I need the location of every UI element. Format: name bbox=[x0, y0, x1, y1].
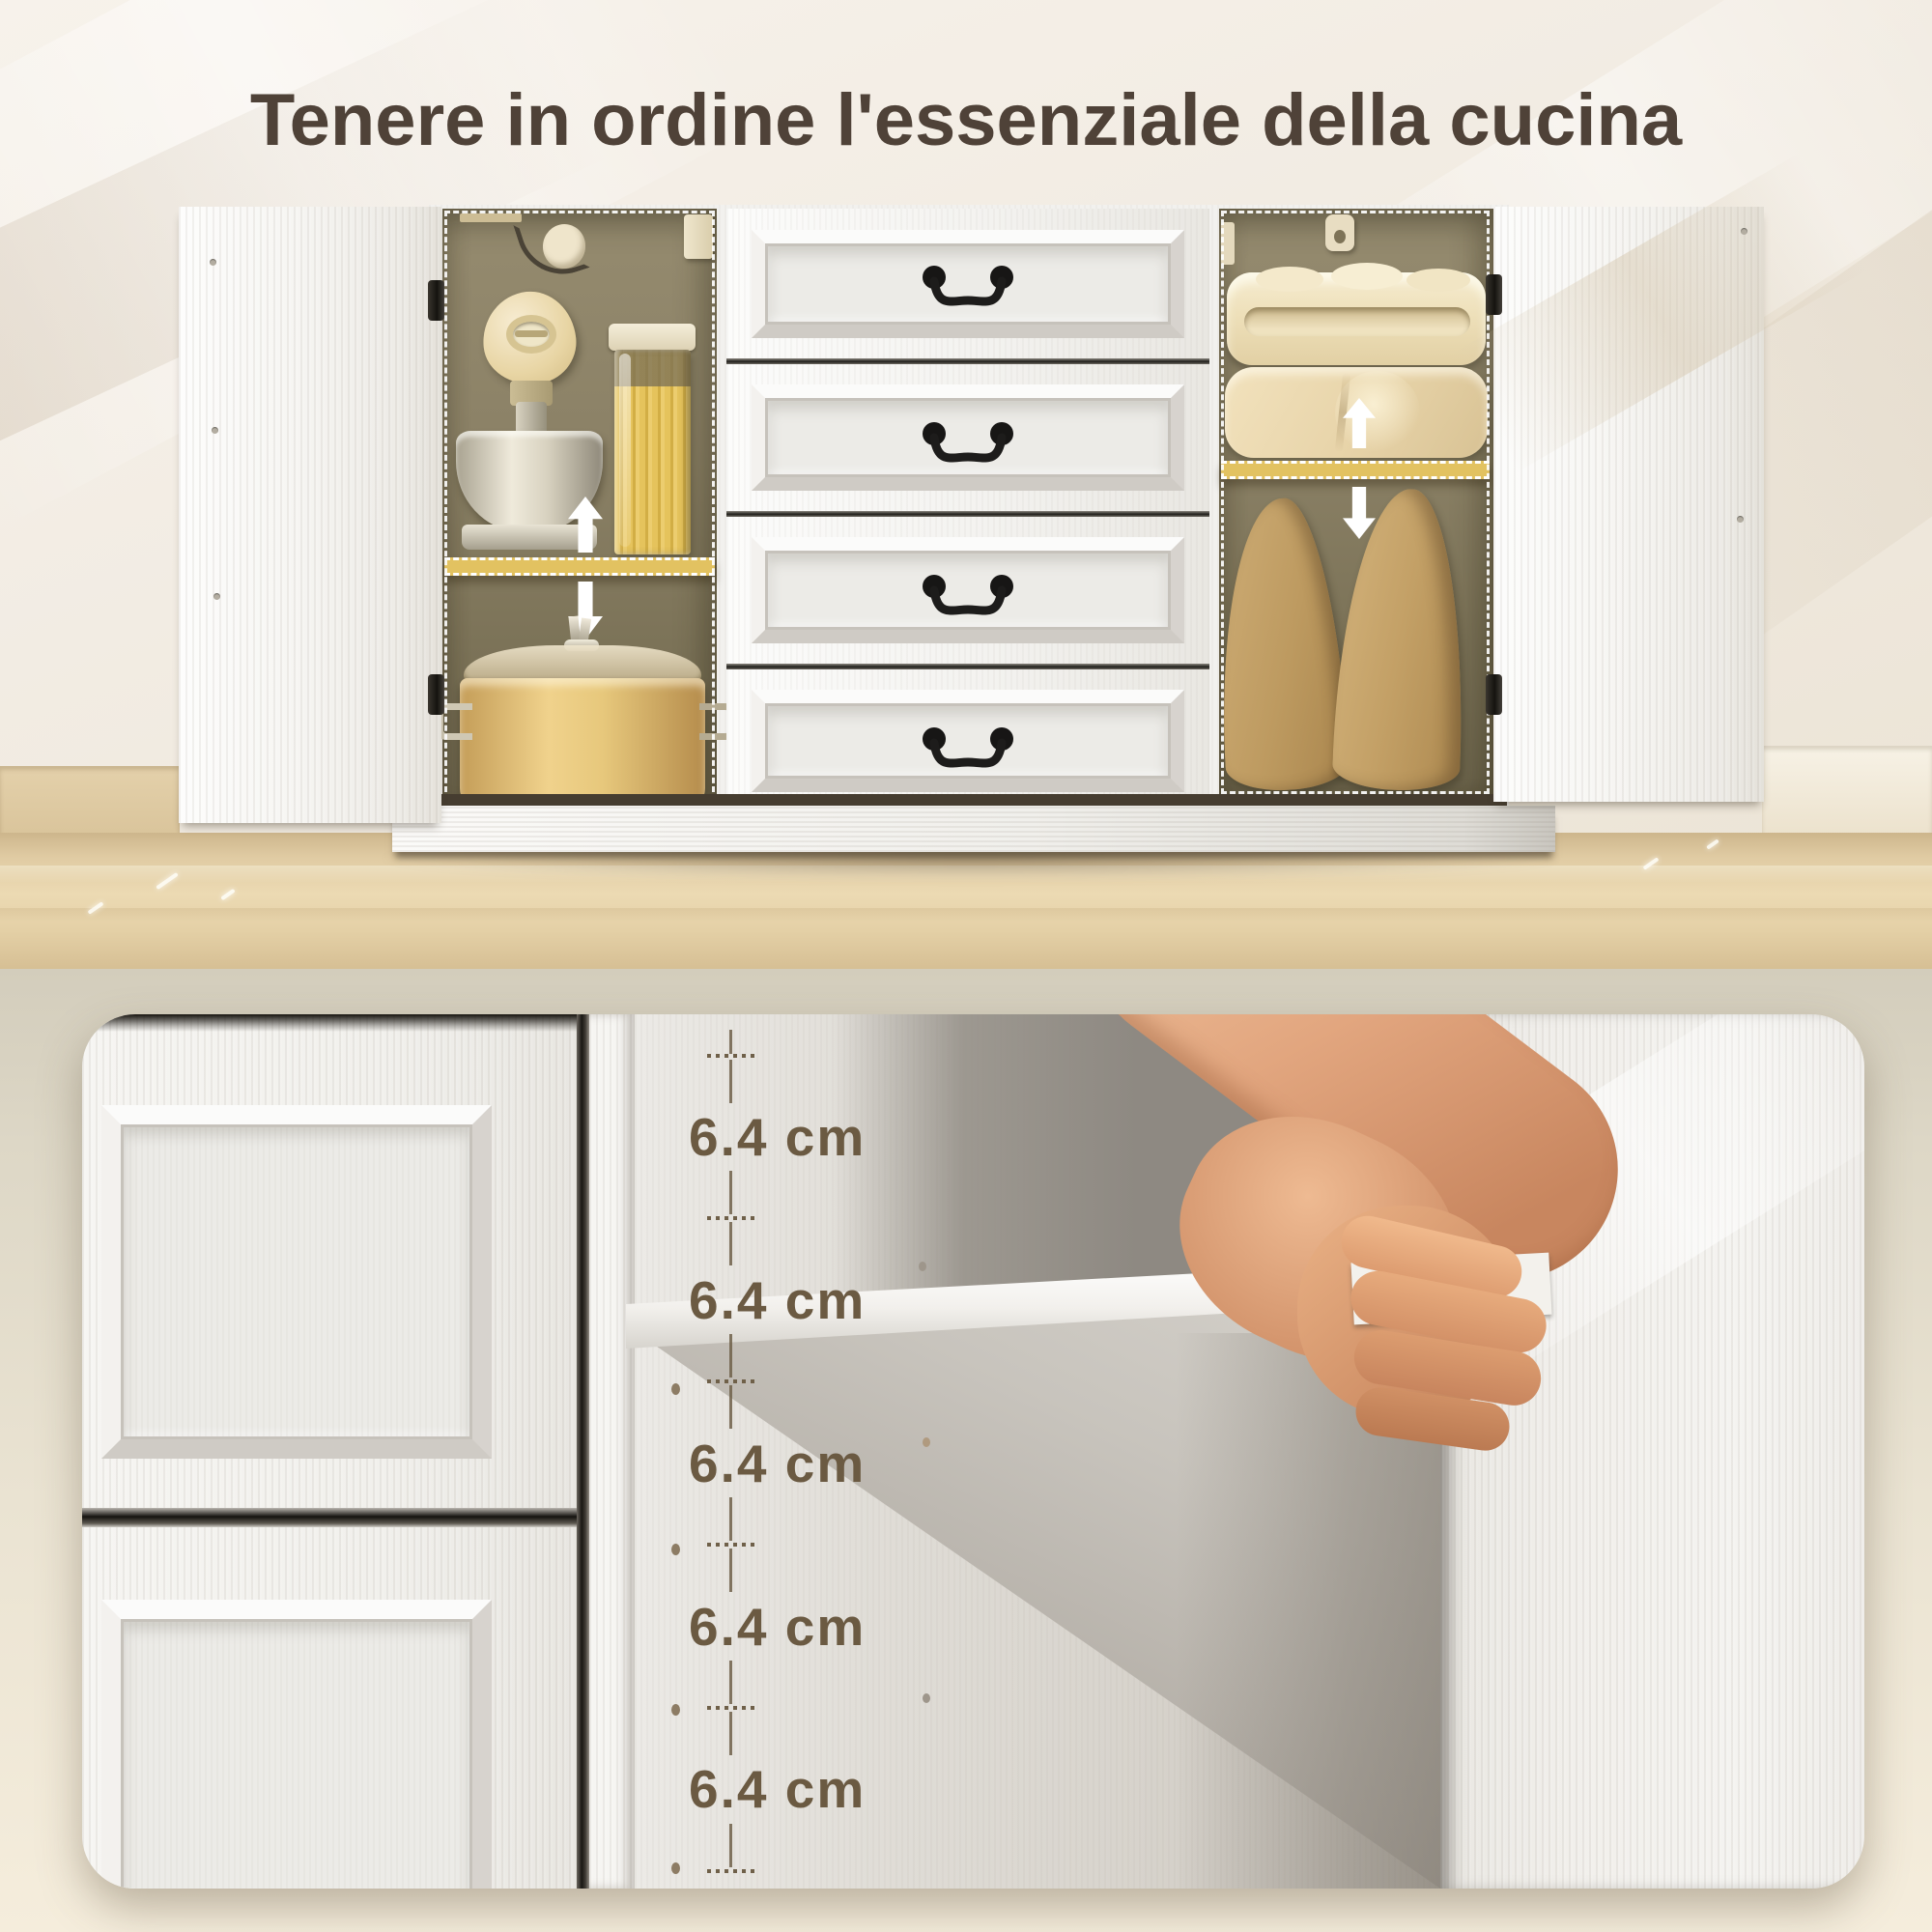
measure-tick bbox=[707, 1869, 757, 1873]
shelf-pin-hole bbox=[671, 1383, 680, 1395]
door-light-streak bbox=[1448, 153, 1867, 472]
shelf-pin-hole bbox=[671, 1544, 680, 1555]
plinth bbox=[392, 806, 1555, 852]
frame-gap bbox=[577, 1014, 589, 1889]
top-photo-scene: Tenere in ordine l'essenziale della cuci… bbox=[0, 0, 1932, 969]
page-title: Tenere in ordine l'essenziale della cuci… bbox=[0, 78, 1932, 162]
drawer-handle bbox=[915, 724, 1021, 781]
screw bbox=[1741, 228, 1747, 235]
shelf-detail-section: 6.4 cm 6.4 cm 6.4 cm 6.4 cm 6.4 cm bbox=[0, 969, 1932, 1932]
front-stile bbox=[589, 1014, 635, 1889]
top-gap-shadow bbox=[82, 1014, 580, 1032]
door-latch bbox=[684, 214, 713, 259]
screw bbox=[210, 259, 216, 266]
drawer-handle bbox=[915, 418, 1021, 476]
drawer-gap bbox=[82, 1508, 580, 1527]
measure-label: 6.4 cm bbox=[689, 1595, 866, 1659]
floor-sparkle bbox=[1706, 838, 1719, 849]
shelf-pin-hole bbox=[923, 1437, 930, 1447]
adjustable-shelf-highlight bbox=[444, 557, 715, 576]
screw bbox=[213, 593, 220, 600]
measure-label: 6.4 cm bbox=[689, 1757, 866, 1821]
shelf-adjust-photo-card: 6.4 cm 6.4 cm 6.4 cm 6.4 cm 6.4 cm bbox=[82, 1014, 1864, 1889]
measure-tick bbox=[707, 1216, 757, 1220]
shelf-pin-hole bbox=[671, 1862, 680, 1874]
measure-label: 6.4 cm bbox=[689, 1105, 866, 1169]
measure-tick bbox=[707, 1706, 757, 1710]
floor-sparkle bbox=[220, 889, 235, 900]
shelf-pin-hole bbox=[923, 1693, 930, 1703]
measure-tick bbox=[707, 1054, 757, 1058]
shelf-pin-hole bbox=[919, 1262, 926, 1271]
top-rail-strip bbox=[460, 213, 522, 222]
screw bbox=[212, 427, 218, 434]
door-hinge bbox=[428, 674, 444, 715]
measure-label: 6.4 cm bbox=[689, 1268, 866, 1332]
upper-drawer-panel bbox=[101, 1105, 492, 1459]
door-hinge bbox=[1486, 274, 1502, 315]
side-bracket bbox=[1221, 222, 1235, 265]
measure-tick bbox=[707, 1379, 757, 1383]
right-door-open bbox=[1493, 207, 1764, 802]
measure-tick bbox=[707, 1543, 757, 1547]
drawer-handle bbox=[915, 262, 1021, 320]
adjustable-shelf-highlight bbox=[1221, 461, 1490, 479]
drawer-handle bbox=[915, 571, 1021, 629]
hook-hole bbox=[1334, 230, 1346, 243]
shelf-pin-hole bbox=[671, 1704, 680, 1716]
product-infographic: Tenere in ordine l'essenziale della cuci… bbox=[0, 0, 1932, 1932]
door-hinge bbox=[428, 280, 444, 321]
screw bbox=[1737, 516, 1744, 523]
baseboard-right bbox=[1762, 746, 1932, 835]
left-door-open bbox=[179, 207, 441, 823]
measure-label: 6.4 cm bbox=[689, 1432, 866, 1495]
lower-drawer-panel bbox=[101, 1600, 492, 1889]
door-hinge bbox=[1486, 674, 1502, 715]
